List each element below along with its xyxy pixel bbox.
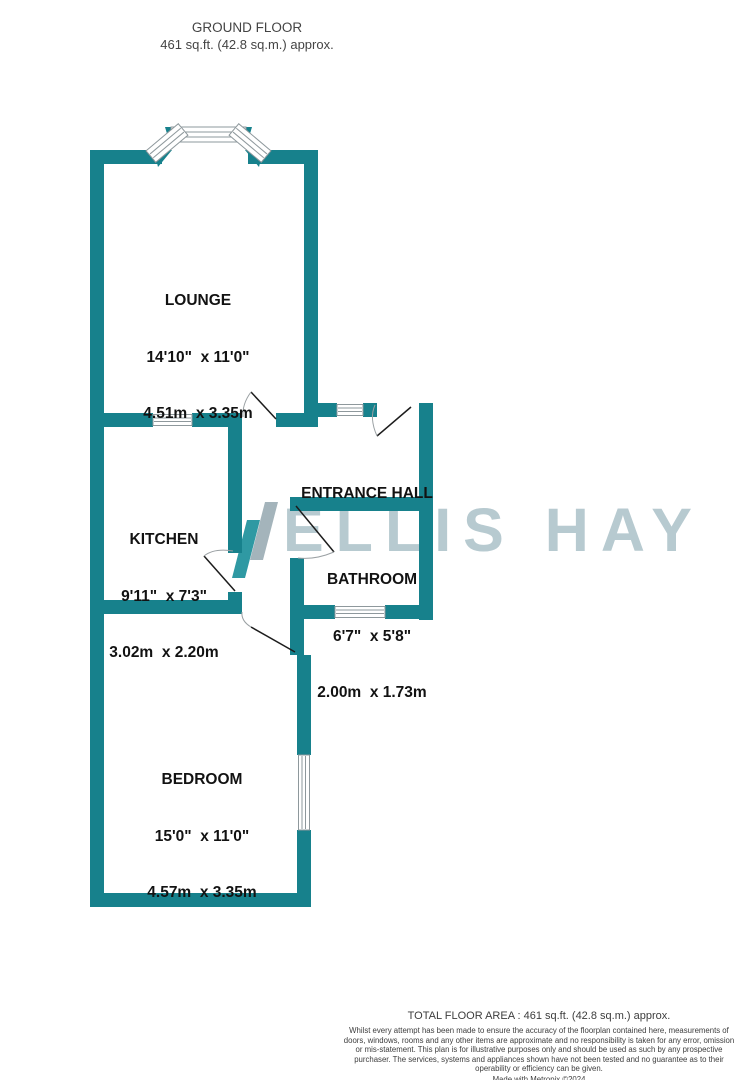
- room-dims-metric: 4.51m x 3.35m: [98, 405, 298, 424]
- room-dims-imperial: 6'7" x 5'8": [272, 628, 472, 647]
- room-name: BEDROOM: [102, 771, 302, 790]
- disclaimer-text: Whilst every attempt has been made to en…: [340, 1026, 738, 1074]
- room-dims-metric: 3.02m x 2.20m: [64, 644, 264, 663]
- room-dims-imperial: 15'0" x 11'0": [102, 828, 302, 847]
- room-name: LOUNGE: [98, 292, 298, 311]
- room-label-bathroom: BATHROOM 6'7" x 5'8" 2.00m x 1.73m: [272, 533, 472, 741]
- room-name: ENTRANCE HALL: [267, 485, 467, 504]
- footer: TOTAL FLOOR AREA : 461 sq.ft. (42.8 sq.m…: [340, 1010, 738, 1080]
- room-dims-imperial: 9'11" x 7'3": [64, 588, 264, 607]
- room-dims-metric: 4.57m x 3.35m: [102, 884, 302, 903]
- room-label-bedroom: BEDROOM 15'0" x 11'0" 4.57m x 3.35m: [102, 733, 302, 941]
- room-label-entrance-hall: ENTRANCE HALL: [267, 447, 467, 542]
- room-label-kitchen: KITCHEN 9'11" x 7'3" 3.02m x 2.20m: [64, 493, 264, 701]
- room-name: KITCHEN: [64, 531, 264, 550]
- metropix-credit: Made with Metropix ©2024: [340, 1075, 738, 1080]
- room-label-lounge: LOUNGE 14'10" x 11'0" 4.51m x 3.35m: [98, 254, 298, 462]
- room-dims-metric: 2.00m x 1.73m: [272, 684, 472, 703]
- room-dims-imperial: 14'10" x 11'0": [98, 349, 298, 368]
- room-labels: LOUNGE 14'10" x 11'0" 4.51m x 3.35m KITC…: [0, 0, 741, 1080]
- floorplan-page: GROUND FLOOR 461 sq.ft. (42.8 sq.m.) app…: [0, 0, 741, 1080]
- total-floor-area: TOTAL FLOOR AREA : 461 sq.ft. (42.8 sq.m…: [340, 1010, 738, 1022]
- room-name: BATHROOM: [272, 571, 472, 590]
